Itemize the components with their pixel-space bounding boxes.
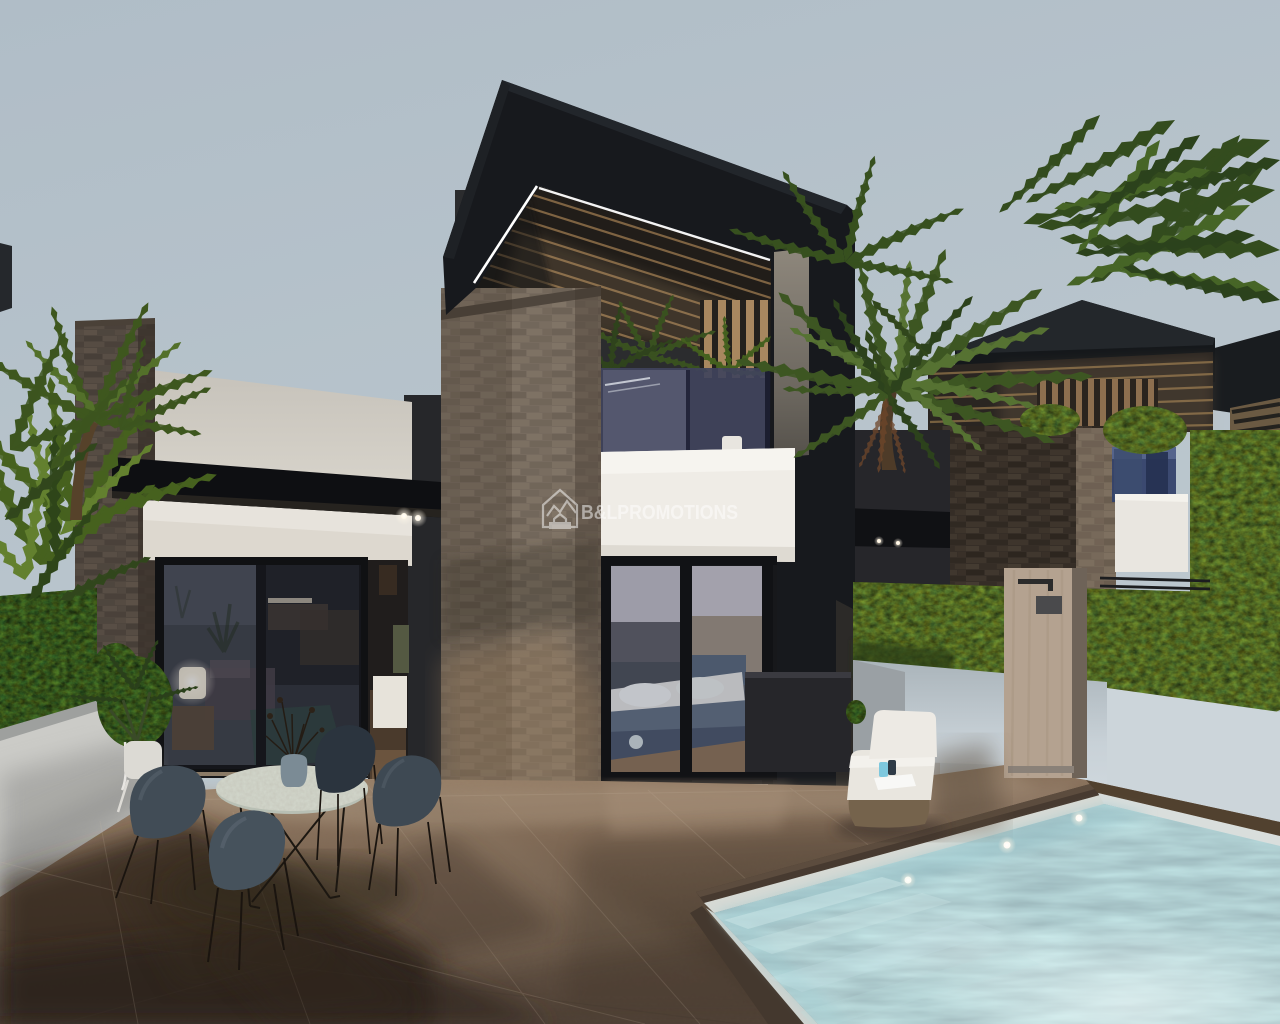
svg-text:B&LPROMOTIONS: B&LPROMOTIONS: [581, 501, 738, 524]
